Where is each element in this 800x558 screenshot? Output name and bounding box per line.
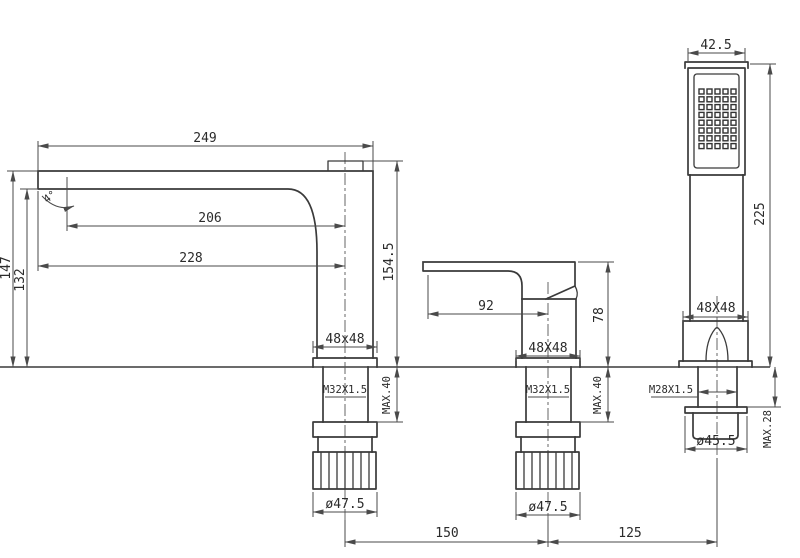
spout-max-deck-label: MAX.40 (381, 376, 393, 414)
nozzle-dot (731, 144, 736, 149)
nozzle-dot (723, 120, 728, 125)
nozzle-dot (699, 120, 704, 125)
nozzle-dot (707, 136, 712, 141)
spout-angle-label: 4° (41, 188, 58, 205)
nozzle-dot (699, 112, 704, 117)
nozzle-dot (723, 97, 728, 102)
nozzle-dot (699, 105, 704, 110)
nozzle-dot (707, 105, 712, 110)
nozzle-dot (707, 89, 712, 94)
spout-reach-label: 249 (193, 131, 216, 146)
nozzle-dot (723, 112, 728, 117)
spout-height-inner-label: 132 (13, 268, 28, 291)
drawing-canvas: 249 4° 206 228 147 132 154.5 48x48 M32X1… (0, 0, 800, 558)
nozzle-dot (707, 120, 712, 125)
nozzle-dot (699, 97, 704, 102)
nozzle-dot (715, 105, 720, 110)
spout-nut-dia-label: ø47.5 (325, 497, 364, 512)
nozzle-dot (731, 112, 736, 117)
spacing-spout-handle-label: 150 (435, 526, 458, 541)
spout-reach-mid-label: 206 (198, 211, 221, 226)
nozzle-dot (723, 89, 728, 94)
nozzle-dot (731, 120, 736, 125)
nozzle-dot (707, 97, 712, 102)
centerlines (345, 152, 717, 520)
handle-section-label: 48X48 (528, 341, 567, 356)
shower-thread-label: M28X1.5 (649, 384, 693, 396)
nozzle-dot (715, 97, 720, 102)
nozzle-dot (723, 136, 728, 141)
nozzle-dot (731, 89, 736, 94)
nozzle-dot (707, 144, 712, 149)
handle-outline (423, 262, 580, 489)
nozzle-dot (699, 128, 704, 133)
nozzle-dot (699, 136, 704, 141)
shower-max-deck-label: MAX.28 (762, 410, 774, 448)
spout-height-outer-label: 147 (0, 256, 14, 279)
nozzle-dot (699, 89, 704, 94)
handle-dimensions: 92 78 48X48 M32X1.5 MAX.40 ø47.5 (428, 262, 614, 520)
nozzle-dot (731, 105, 736, 110)
handle-max-deck-label: MAX.40 (592, 376, 604, 414)
spacing-handle-shower-label: 125 (618, 526, 641, 541)
handle-lever-length-label: 92 (478, 299, 494, 314)
shower-height-label: 225 (753, 202, 768, 225)
shower-outline (679, 62, 752, 439)
nozzle-dot (715, 89, 720, 94)
spout-section-label: 48x48 (325, 332, 364, 347)
faucet-technical-drawing: 249 4° 206 228 147 132 154.5 48x48 M32X1… (0, 0, 800, 558)
spout-reach-low-label: 228 (179, 251, 202, 266)
nozzle-dot (715, 136, 720, 141)
nozzle-dot (715, 112, 720, 117)
nozzle-dot (715, 128, 720, 133)
nozzle-dot (723, 144, 728, 149)
handle-thread-label: M32X1.5 (526, 384, 570, 396)
nozzle-dot (731, 136, 736, 141)
handle-height-label: 78 (592, 307, 607, 323)
shower-section-label: 48X48 (696, 301, 735, 316)
nozzle-dot (723, 105, 728, 110)
nozzle-dot (707, 128, 712, 133)
nozzle-dot (723, 128, 728, 133)
shower-head-width-label: 42.5 (700, 38, 731, 53)
nozzle-dot (731, 128, 736, 133)
nozzle-dot (699, 144, 704, 149)
spout-thread-label: M32X1.5 (323, 384, 367, 396)
nozzle-dot (715, 120, 720, 125)
nozzle-dot (731, 97, 736, 102)
nozzle-dot (715, 144, 720, 149)
nozzle-grid (699, 89, 736, 149)
nozzle-dot (707, 112, 712, 117)
spout-height-total-label: 154.5 (382, 242, 397, 281)
shower-nut-dia-label: ø45.5 (696, 434, 735, 449)
handle-nut-dia-label: ø47.5 (528, 500, 567, 515)
